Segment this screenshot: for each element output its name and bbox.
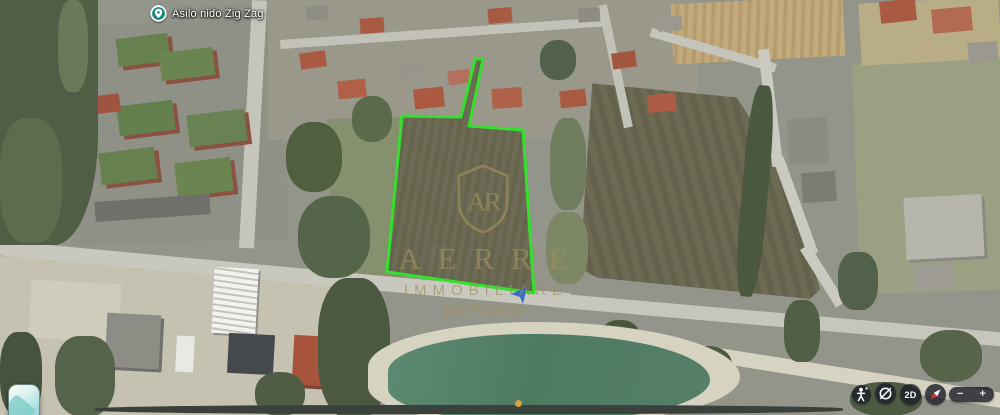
- zoom-control[interactable]: − +: [949, 387, 994, 402]
- terrain-shape: [920, 330, 982, 382]
- terrain-shape: [491, 87, 522, 109]
- terrain-shape: [658, 15, 683, 32]
- terrain-shape: [578, 7, 601, 23]
- terrain-shape: [337, 79, 367, 100]
- place-marker-icon: [150, 5, 167, 22]
- terrain-shape: [903, 194, 984, 260]
- zoom-out-button[interactable]: −: [957, 389, 963, 400]
- terrain-shape: [487, 7, 512, 24]
- terrain-shape: [360, 17, 385, 34]
- thumbnail-graphic: [8, 394, 36, 415]
- terrain-shape: [611, 50, 637, 69]
- terrain-shape: [352, 96, 392, 142]
- terrain-shape: [931, 6, 973, 33]
- map-style-thumbnail[interactable]: [8, 384, 40, 415]
- place-label[interactable]: Asilo nido Zig Zag: [150, 5, 264, 22]
- terrain-shape: [298, 196, 370, 278]
- terrain-shape: [286, 122, 342, 192]
- terrain-shape: [647, 93, 676, 113]
- terrain-shape: [967, 41, 999, 64]
- terrain-shape: [397, 60, 423, 79]
- terrain-shape: [95, 405, 843, 414]
- terrain-shape: [540, 40, 576, 80]
- pegman-button[interactable]: [852, 385, 871, 404]
- pegman-icon: [855, 387, 868, 402]
- satellite-imagery: [0, 0, 1000, 415]
- terrain-shape: [174, 157, 234, 198]
- terrain-shape: [305, 5, 328, 21]
- view-mode-label: 2D: [904, 390, 916, 400]
- terrain-shape: [550, 118, 586, 210]
- terrain-shape: [879, 0, 917, 24]
- terrain-shape: [0, 118, 62, 243]
- terrain-shape: [913, 263, 954, 291]
- compass-button[interactable]: [925, 384, 946, 405]
- terrain-shape: [227, 333, 275, 375]
- terrain-shape: [559, 89, 587, 109]
- terrain-shape: [515, 400, 522, 407]
- place-label-text: Asilo nido Zig Zag: [172, 8, 264, 20]
- terrain-shape: [786, 117, 829, 166]
- terrain-shape: [413, 86, 445, 109]
- terrain-shape: [211, 267, 258, 335]
- terrain-shape: [58, 0, 88, 92]
- terrain-shape: [784, 300, 820, 362]
- orbit-button[interactable]: [875, 383, 896, 404]
- terrain-shape: [98, 147, 157, 186]
- satellite-map-view[interactable]: Asilo nido Zig Zag AR AERRE IMMOBILIARE …: [0, 0, 1000, 415]
- terrain-shape: [55, 336, 115, 415]
- terrain-shape: [801, 171, 837, 203]
- terrain-shape: [838, 252, 878, 310]
- circle-slash-icon: [878, 386, 893, 401]
- terrain-shape: [175, 336, 195, 373]
- compass-icon: [927, 386, 944, 403]
- view-mode-button[interactable]: 2D: [900, 384, 921, 405]
- terrain-shape: [426, 243, 451, 263]
- terrain-shape: [546, 212, 588, 284]
- zoom-in-button[interactable]: +: [980, 389, 986, 400]
